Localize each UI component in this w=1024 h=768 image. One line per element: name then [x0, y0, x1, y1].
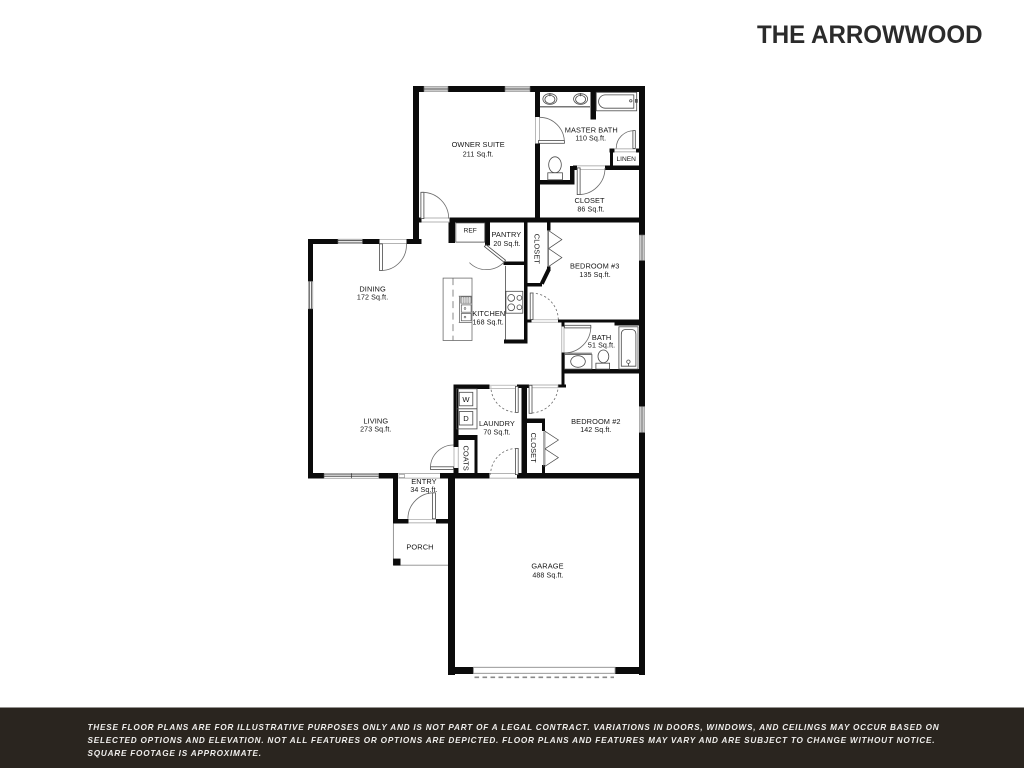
- svg-text:THE ARROWWOOD: THE ARROWWOOD: [757, 21, 983, 49]
- svg-text:LAUNDRY: LAUNDRY: [479, 419, 515, 428]
- svg-text:273 Sq.ft.: 273 Sq.ft.: [360, 425, 391, 433]
- svg-text:51 Sq.ft.: 51 Sq.ft.: [588, 341, 615, 349]
- svg-text:34 Sq.ft.: 34 Sq.ft.: [410, 486, 437, 494]
- svg-text:ENTRY: ENTRY: [411, 477, 436, 486]
- svg-text:20 Sq.ft.: 20 Sq.ft.: [493, 240, 520, 248]
- svg-text:110 Sq.ft.: 110 Sq.ft.: [575, 135, 606, 143]
- svg-text:BEDROOM #3: BEDROOM #3: [570, 261, 619, 270]
- svg-text:CLOSET: CLOSET: [575, 196, 606, 205]
- svg-text:86 Sq.ft.: 86 Sq.ft.: [577, 206, 604, 214]
- svg-text:DINING: DINING: [359, 285, 386, 294]
- svg-text:OWNER SUITE: OWNER SUITE: [452, 140, 505, 149]
- svg-text:D: D: [463, 414, 469, 423]
- svg-text:COATS: COATS: [461, 445, 470, 470]
- svg-text:KITCHEN: KITCHEN: [472, 309, 505, 318]
- svg-text:SELECTED OPTIONS AND ELEVATION: SELECTED OPTIONS AND ELEVATION. NOT ALL …: [88, 736, 936, 745]
- svg-text:LIVING: LIVING: [363, 416, 388, 425]
- svg-text:142 Sq.ft.: 142 Sq.ft.: [580, 426, 611, 434]
- svg-text:MASTER BATH: MASTER BATH: [565, 126, 618, 135]
- svg-text:GARAGE: GARAGE: [531, 562, 563, 571]
- svg-text:168 Sq.ft.: 168 Sq.ft.: [473, 319, 504, 327]
- svg-text:211 Sq.ft.: 211 Sq.ft.: [463, 150, 494, 158]
- svg-text:SQUARE FOOTAGE IS APPROXIMATE.: SQUARE FOOTAGE IS APPROXIMATE.: [88, 749, 262, 758]
- svg-text:W: W: [462, 395, 470, 404]
- svg-text:LINEN: LINEN: [616, 156, 636, 163]
- svg-text:CLOSET: CLOSET: [532, 234, 541, 265]
- svg-text:PANTRY: PANTRY: [491, 230, 521, 239]
- svg-text:BEDROOM #2: BEDROOM #2: [571, 417, 620, 426]
- svg-text:PORCH: PORCH: [406, 542, 433, 551]
- svg-text:REF: REF: [464, 227, 477, 234]
- svg-text:70 Sq.ft.: 70 Sq.ft.: [483, 429, 510, 437]
- svg-text:488 Sq.ft.: 488 Sq.ft.: [532, 572, 563, 580]
- svg-text:135 Sq.ft.: 135 Sq.ft.: [579, 271, 610, 279]
- svg-text:172 Sq.ft.: 172 Sq.ft.: [357, 294, 388, 302]
- svg-text:CLOSET: CLOSET: [529, 433, 538, 464]
- svg-text:THESE FLOOR PLANS ARE FOR ILLU: THESE FLOOR PLANS ARE FOR ILLUSTRATIVE P…: [88, 723, 940, 732]
